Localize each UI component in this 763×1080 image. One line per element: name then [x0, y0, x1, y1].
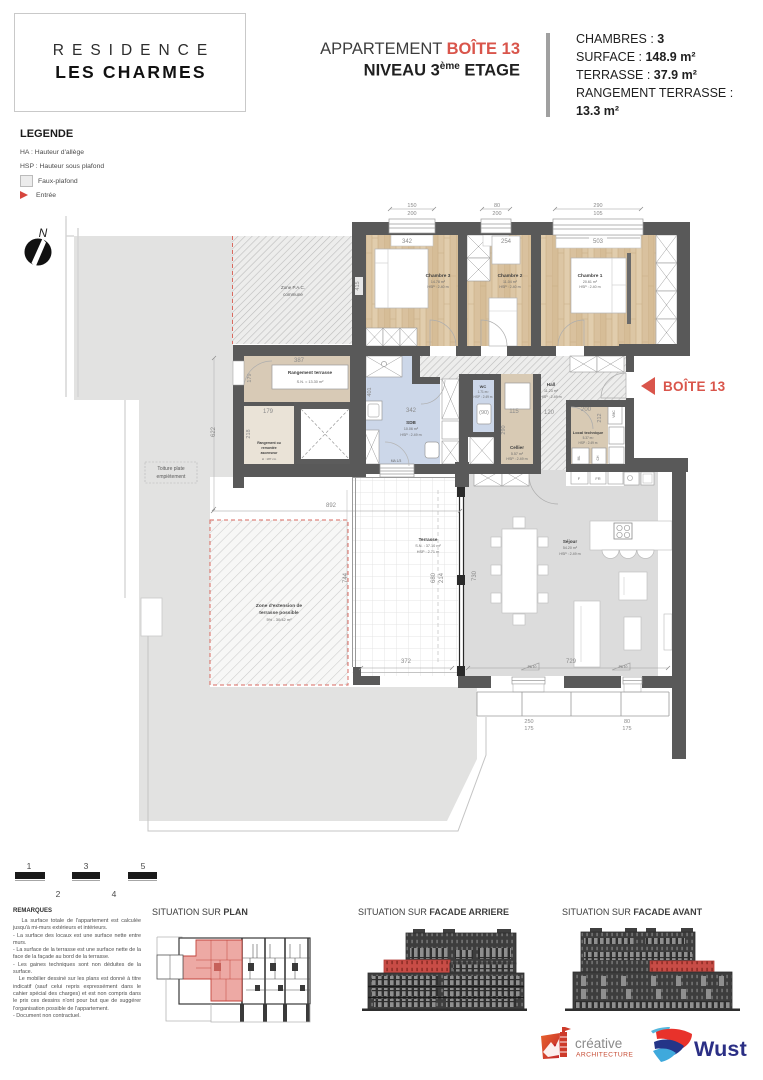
svg-text:250: 250 [524, 719, 533, 725]
svg-text:Chambre 2: Chambre 2 [498, 273, 523, 279]
svg-text:empiètement: empiètement [157, 474, 187, 480]
svg-text:1.71 m²: 1.71 m² [478, 390, 489, 394]
svg-text:HSP : 2.40 m: HSP : 2.40 m [579, 285, 600, 289]
svg-text:Cellier: Cellier [510, 445, 524, 450]
svg-text:54.20 m²: 54.20 m² [563, 546, 578, 550]
svg-text:S.N. = 13.30 m²: S.N. = 13.30 m² [297, 380, 324, 384]
svg-text:HSP : 2.49 m: HSP : 2.49 m [474, 395, 493, 399]
svg-text:387: 387 [294, 358, 305, 364]
svg-text:218: 218 [246, 429, 252, 438]
svg-text:Séjour: Séjour [563, 539, 578, 544]
svg-text:179: 179 [263, 409, 274, 415]
svg-text:VMC: VMC [612, 410, 616, 418]
svg-text:212: 212 [597, 413, 603, 422]
svg-text:5% - 30/42 m²: 5% - 30/42 m² [266, 617, 292, 622]
svg-text:créative: créative [575, 1036, 622, 1051]
svg-text:290: 290 [593, 203, 602, 209]
svg-text:(90): (90) [479, 410, 489, 416]
svg-text:200: 200 [407, 211, 416, 217]
svg-text:CH: CH [596, 455, 600, 460]
svg-text:H : 187 cm: H : 187 cm [262, 457, 277, 461]
svg-text:105: 105 [593, 211, 602, 217]
svg-text:FR: FR [595, 476, 600, 481]
svg-text:PA 10: PA 10 [528, 665, 537, 669]
svg-text:342: 342 [402, 239, 413, 245]
svg-text:ascenseur: ascenseur [261, 451, 278, 455]
svg-text:Zone d'extension de: Zone d'extension de [256, 603, 303, 609]
svg-text:Terrasse: Terrasse [419, 537, 438, 542]
svg-text:Rangement ou: Rangement ou [257, 441, 281, 445]
svg-text:10.06 m²: 10.06 m² [404, 427, 419, 431]
svg-text:372: 372 [401, 659, 412, 665]
svg-text:5: 5 [141, 861, 146, 871]
svg-text:HSP : 2.40 m: HSP : 2.40 m [427, 285, 448, 289]
svg-text:254: 254 [501, 239, 512, 245]
svg-text:HSP : 2.49 m: HSP : 2.49 m [579, 441, 598, 445]
svg-text:5.37 m²: 5.37 m² [583, 436, 594, 440]
svg-text:80: 80 [494, 203, 500, 209]
svg-text:Zone P.A.C.: Zone P.A.C. [281, 285, 305, 290]
svg-text:HSP : 2.71 m: HSP : 2.71 m [417, 550, 440, 554]
svg-text:680: 680 [431, 572, 437, 583]
svg-text:HSP : 2.49 m: HSP : 2.49 m [400, 433, 421, 437]
svg-text:214: 214 [439, 572, 445, 583]
svg-text:HSP : 2.49 m: HSP : 2.49 m [559, 552, 580, 556]
svg-text:BOÎTE 13: BOÎTE 13 [663, 379, 726, 394]
svg-text:729: 729 [566, 659, 577, 665]
svg-text:150: 150 [407, 203, 416, 209]
svg-text:1: 1 [27, 861, 32, 871]
svg-text:401: 401 [367, 387, 373, 396]
svg-text:342: 342 [406, 408, 417, 414]
svg-text:4: 4 [112, 889, 117, 899]
svg-text:WC: WC [480, 384, 487, 389]
svg-text:622: 622 [211, 426, 217, 437]
svg-text:2: 2 [56, 889, 61, 899]
svg-text:remontée: remontée [261, 446, 276, 450]
svg-text:11.23 m²: 11.23 m² [544, 389, 559, 393]
svg-text:MA 1/3: MA 1/3 [391, 459, 402, 463]
svg-text:Hall: Hall [547, 382, 555, 387]
svg-text:commune: commune [283, 292, 303, 297]
svg-text:Toiture plate: Toiture plate [157, 466, 184, 472]
svg-text:HSP : 2.49 m: HSP : 2.49 m [506, 457, 527, 461]
svg-text:terrasse possible: terrasse possible [259, 610, 299, 616]
svg-text:115: 115 [509, 409, 519, 415]
svg-text:Chambre 3: Chambre 3 [426, 273, 451, 279]
svg-text:HSP : 2.40 m: HSP : 2.40 m [499, 285, 520, 289]
svg-text:S.N. : 37.10 m²: S.N. : 37.10 m² [415, 544, 441, 548]
svg-text:PA 10: PA 10 [619, 665, 628, 669]
svg-text:Chambre 1: Chambre 1 [578, 273, 603, 279]
svg-text:200: 200 [492, 211, 501, 217]
svg-text:ARCHITECTURE: ARCHITECTURE [576, 1052, 633, 1059]
svg-text:Local technique: Local technique [573, 430, 604, 435]
svg-text:175: 175 [524, 726, 533, 732]
svg-text:80: 80 [624, 719, 630, 725]
svg-text:175: 175 [622, 726, 631, 732]
svg-text:120: 120 [544, 410, 555, 416]
svg-text:5.57 m²: 5.57 m² [511, 452, 524, 456]
svg-text:Wust: Wust [694, 1037, 747, 1061]
svg-text:415: 415 [355, 281, 361, 290]
svg-text:290: 290 [501, 425, 507, 434]
svg-text:20.61 m²: 20.61 m² [583, 280, 598, 284]
svg-text:11.04 m²: 11.04 m² [503, 280, 518, 284]
svg-text:3: 3 [84, 861, 89, 871]
svg-text:14.78 m²: 14.78 m² [431, 280, 446, 284]
svg-text:ML: ML [577, 456, 581, 461]
svg-text:730: 730 [472, 570, 478, 581]
svg-text:892: 892 [326, 503, 337, 509]
svg-text:Rangement terrasse: Rangement terrasse [288, 370, 333, 375]
svg-text:503: 503 [593, 239, 604, 245]
svg-text:N: N [39, 226, 48, 240]
svg-text:SDB: SDB [406, 420, 416, 425]
svg-text:744: 744 [343, 572, 349, 583]
svg-text:HSP : 2.49 m: HSP : 2.49 m [540, 395, 561, 399]
